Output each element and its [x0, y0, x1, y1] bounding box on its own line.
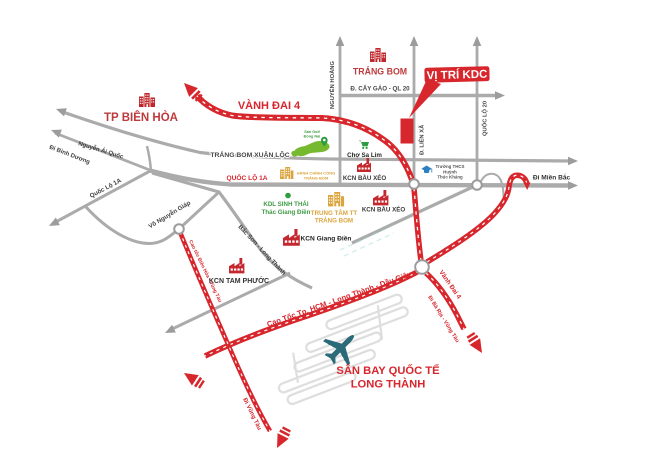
svg-text:KCN Giang Điền: KCN Giang Điền	[301, 234, 352, 243]
svg-text:TRẢNG BOM: TRẢNG BOM	[304, 176, 329, 181]
svg-text:Sân Golf: Sân Golf	[304, 130, 320, 134]
svg-text:QUỐC LỘ 20: QUỐC LỘ 20	[481, 101, 489, 136]
svg-text:Đ. LIÊN XÃ: Đ. LIÊN XÃ	[418, 124, 426, 155]
svg-text:LONG THÀNH: LONG THÀNH	[351, 378, 426, 391]
svg-text:VÀNH ĐAI 4: VÀNH ĐAI 4	[238, 99, 301, 112]
svg-text:TRẢNG BOM: TRẢNG BOM	[315, 218, 353, 225]
svg-text:NGUYỄN HOÀNG: NGUYỄN HOÀNG	[329, 61, 336, 109]
svg-text:Chợ Sa Lim: Chợ Sa Lim	[347, 152, 382, 159]
svg-text:TP BIÊN HÒA: TP BIÊN HÒA	[104, 111, 178, 124]
svg-text:KCN BẦU XÉO: KCN BẦU XÉO	[343, 174, 387, 182]
svg-text:TRUNG TÂM TT: TRUNG TÂM TT	[311, 210, 358, 217]
svg-text:Đi Miền Bắc: Đi Miền Bắc	[533, 173, 571, 182]
svg-text:Trường THCS: Trường THCS	[436, 164, 465, 169]
svg-text:KDL SINH THÁI: KDL SINH THÁI	[263, 201, 309, 208]
svg-text:KCN BẦU XÉO: KCN BẦU XÉO	[362, 206, 406, 214]
svg-text:TRẢNG BOM: TRẢNG BOM	[353, 66, 407, 77]
svg-text:TRẢNG BOM XUÂN LỘC: TRẢNG BOM XUÂN LỘC	[210, 150, 289, 159]
svg-text:Thác Giang Điền: Thác Giang Điền	[262, 209, 311, 216]
svg-text:Huỳnh: Huỳnh	[443, 169, 457, 174]
svg-text:Đ. CÂY GÁO - QL 20: Đ. CÂY GÁO - QL 20	[350, 86, 410, 93]
svg-text:KCN TAM PHƯỚC: KCN TAM PHƯỚC	[209, 276, 269, 285]
svg-text:Đồng Nai: Đồng Nai	[304, 135, 321, 139]
svg-text:VỊ TRÍ KDC: VỊ TRÍ KDC	[427, 68, 488, 83]
svg-text:SÂN BAY QUỐC TẾ: SÂN BAY QUỐC TẾ	[336, 363, 440, 377]
svg-text:Thúc Kháng: Thúc Kháng	[437, 175, 463, 180]
